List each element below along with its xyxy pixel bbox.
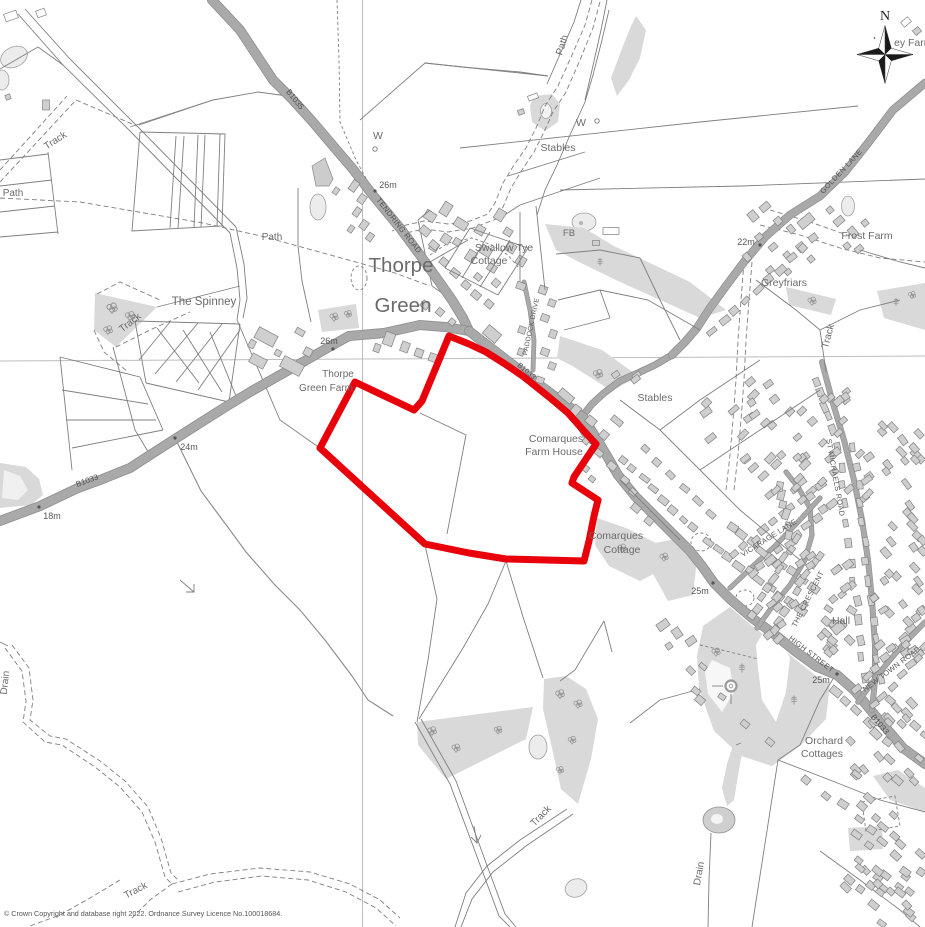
svg-text:Swallow Tye: Swallow Tye [475, 242, 533, 254]
svg-text:Path: Path [262, 232, 283, 243]
svg-text:FB: FB [563, 228, 575, 239]
svg-text:18m: 18m [43, 511, 61, 521]
svg-text:25m: 25m [691, 586, 709, 596]
svg-text:ey Farm: ey Farm [894, 37, 925, 49]
svg-text:Green Farm: Green Farm [299, 383, 353, 394]
svg-text:Path: Path [3, 188, 24, 199]
svg-text:26m: 26m [379, 180, 397, 190]
svg-text:W: W [576, 117, 586, 129]
svg-text:22m: 22m [737, 237, 755, 247]
svg-text:Greyfriars: Greyfriars [761, 277, 807, 289]
svg-text:Cottage: Cottage [471, 255, 508, 267]
svg-text:N: N [880, 9, 890, 24]
svg-text:Green: Green [375, 294, 432, 317]
svg-text:W: W [373, 130, 383, 142]
svg-text:26m: 26m [320, 336, 338, 346]
svg-text:24m: 24m [180, 442, 198, 452]
svg-text:Frost Farm: Frost Farm [841, 230, 893, 242]
svg-text:The Spinney: The Spinney [172, 296, 237, 308]
svg-text:Comarques: Comarques [529, 433, 583, 445]
svg-text:Hall: Hall [832, 615, 850, 627]
svg-text:© Crown Copyright and database: © Crown Copyright and database right 202… [4, 909, 282, 918]
svg-text:Thorpe: Thorpe [369, 254, 434, 277]
svg-text:Comarques: Comarques [589, 530, 643, 542]
svg-text:Cottages: Cottages [801, 748, 843, 760]
svg-text:Orchard: Orchard [805, 735, 843, 747]
svg-text:Stables: Stables [637, 392, 672, 404]
svg-text:Farm House: Farm House [525, 446, 583, 458]
svg-text:Stables: Stables [540, 142, 575, 154]
svg-text:Cottage: Cottage [604, 544, 641, 556]
svg-text:Thorpe: Thorpe [322, 369, 354, 380]
svg-text:25m: 25m [812, 675, 830, 685]
